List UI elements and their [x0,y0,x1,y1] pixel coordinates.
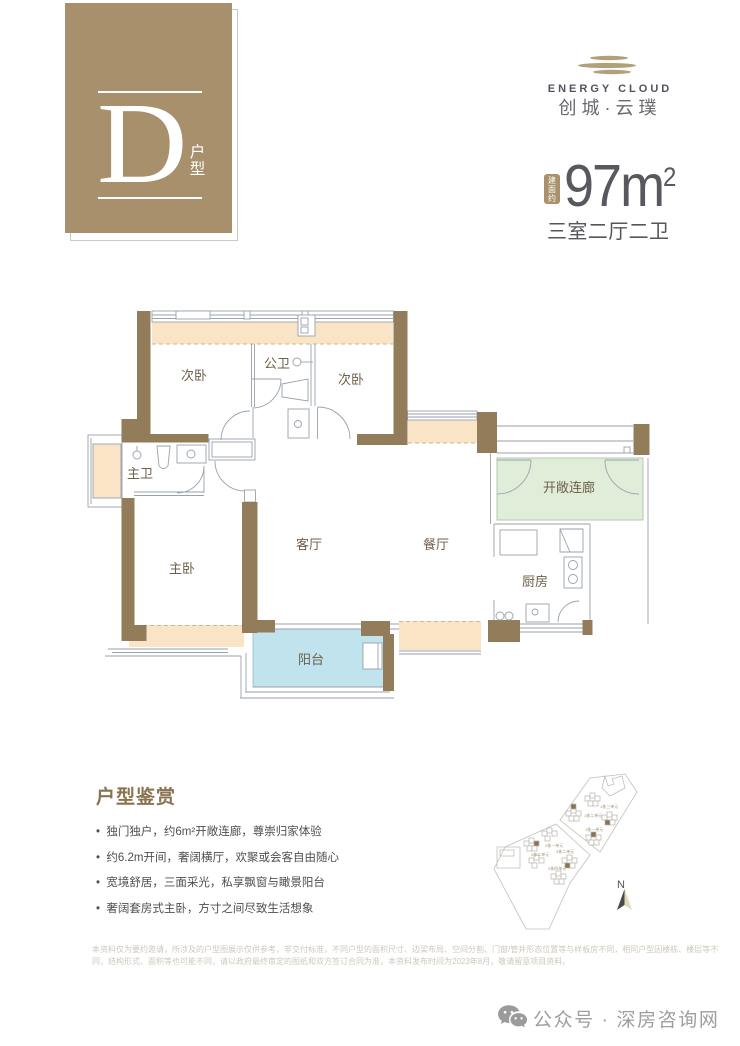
svg-text:主卫: 主卫 [127,466,153,481]
svg-text:开敞连廊: 开敞连廊 [543,480,595,495]
svg-text:1栋二单元: 1栋二单元 [584,812,602,818]
svg-text:次卧: 次卧 [338,372,364,387]
svg-text:主卧: 主卧 [169,561,195,576]
svg-text:餐厅: 餐厅 [423,537,449,552]
svg-text:次卧: 次卧 [181,368,207,383]
svg-text:2栋二单元: 2栋二单元 [531,851,549,857]
svg-text:厨房: 厨房 [522,574,548,589]
svg-text:阳台: 阳台 [298,652,324,667]
svg-text:3栋四单元: 3栋四单元 [548,865,566,871]
svg-text:N: N [617,879,625,891]
svg-text:2栋一单元: 2栋一单元 [545,842,563,848]
svg-text:3栋二单元: 3栋二单元 [556,848,574,854]
svg-text:公卫: 公卫 [264,356,290,371]
svg-text:1栋三单元: 1栋三单元 [600,803,618,809]
svg-text:客厅: 客厅 [296,537,322,552]
svg-text:1栋一单元: 1栋一单元 [585,826,603,832]
